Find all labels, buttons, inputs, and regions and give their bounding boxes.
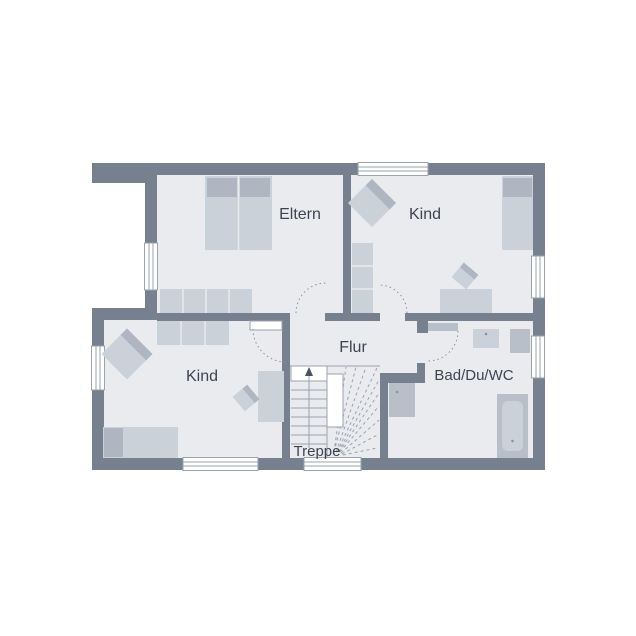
desk <box>440 289 492 313</box>
pillow <box>240 178 270 197</box>
door-leaf-bad <box>428 323 458 331</box>
wall-kind-bad <box>405 313 533 321</box>
room-label-kind-top: Kind <box>409 206 441 223</box>
shelf <box>352 243 373 313</box>
wall-nub-flur-bad <box>417 363 425 383</box>
shower-drain <box>396 391 399 394</box>
wall-stairwell-right <box>380 373 388 458</box>
outer-wall-stub <box>92 163 157 183</box>
pillow <box>207 178 237 197</box>
wardrobe <box>157 321 229 345</box>
window-left-kind <box>92 346 105 390</box>
wall-flur-bad <box>388 373 418 383</box>
wall-eltern-kind <box>343 175 351 315</box>
door-leaf-kind-bottom <box>250 321 282 330</box>
window-left-eltern <box>145 243 158 290</box>
room-label-eltern: Eltern <box>279 206 321 223</box>
bathtub <box>497 394 528 458</box>
wall-nub-bad-door <box>417 321 428 333</box>
desk <box>258 371 284 422</box>
window-bottom-kind <box>183 458 258 471</box>
window-top-kind <box>358 163 428 176</box>
washbasin-tap <box>485 333 488 336</box>
wall-eltern-flur <box>157 313 290 321</box>
room-label-flur: Flur <box>339 339 367 356</box>
room-label-bad: Bad/Du/WC <box>434 367 513 384</box>
pillow <box>503 178 532 197</box>
pillow <box>104 428 123 457</box>
window-right-bad <box>532 336 545 378</box>
wc <box>510 329 530 353</box>
floor-plan-page: Eltern Kind Kind Flur Bad/Du/WC Treppe <box>0 0 636 636</box>
floor-plan-drawing: Eltern Kind Kind Flur Bad/Du/WC Treppe <box>0 0 636 636</box>
wall-tcap <box>325 313 380 321</box>
room-label-treppe: Treppe <box>294 443 341 460</box>
shower <box>389 383 415 417</box>
room-label-kind-bottom: Kind <box>186 368 218 385</box>
window-right-kind <box>532 256 545 298</box>
wardrobe <box>160 289 252 313</box>
washbasin <box>473 329 499 348</box>
stair-void <box>327 374 343 427</box>
